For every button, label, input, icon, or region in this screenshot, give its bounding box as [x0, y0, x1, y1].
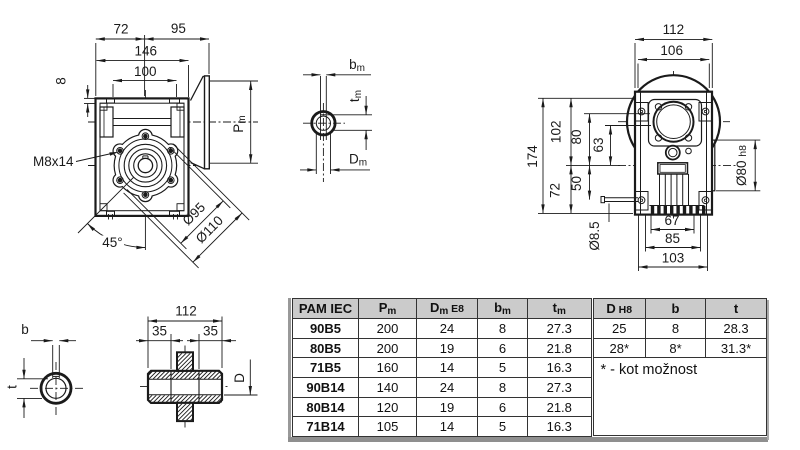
svg-text:35: 35: [203, 324, 218, 339]
svg-text:8: 8: [54, 77, 69, 85]
svg-text:67: 67: [664, 213, 679, 228]
svg-text:Ø80 h8: Ø80 h8: [734, 145, 749, 186]
svg-text:Pm: Pm: [231, 115, 248, 132]
svg-text:tm: tm: [347, 90, 364, 102]
svg-text:95: 95: [171, 21, 186, 36]
svg-text:103: 103: [662, 251, 685, 266]
svg-text:50: 50: [569, 176, 584, 191]
svg-text:D: D: [232, 373, 247, 383]
svg-text:bm: bm: [349, 57, 365, 74]
svg-text:45°: 45°: [102, 235, 122, 250]
svg-text:72: 72: [548, 183, 563, 198]
svg-text:100: 100: [134, 64, 157, 79]
svg-text:63: 63: [591, 137, 606, 152]
svg-text:112: 112: [663, 22, 685, 37]
svg-text:112: 112: [175, 304, 197, 319]
svg-text:b: b: [21, 322, 29, 337]
svg-text:102: 102: [549, 121, 564, 144]
svg-text:146: 146: [135, 44, 158, 59]
svg-text:M8x14: M8x14: [33, 154, 74, 169]
svg-text:35: 35: [152, 324, 167, 339]
svg-text:Dm: Dm: [349, 152, 367, 169]
svg-text:Ø8.5: Ø8.5: [587, 221, 602, 250]
svg-text:72: 72: [113, 22, 128, 37]
svg-text:80: 80: [569, 129, 584, 144]
svg-text:106: 106: [660, 43, 683, 58]
svg-text:t: t: [5, 385, 20, 389]
svg-text:174: 174: [525, 145, 540, 168]
svg-text:85: 85: [665, 231, 680, 246]
